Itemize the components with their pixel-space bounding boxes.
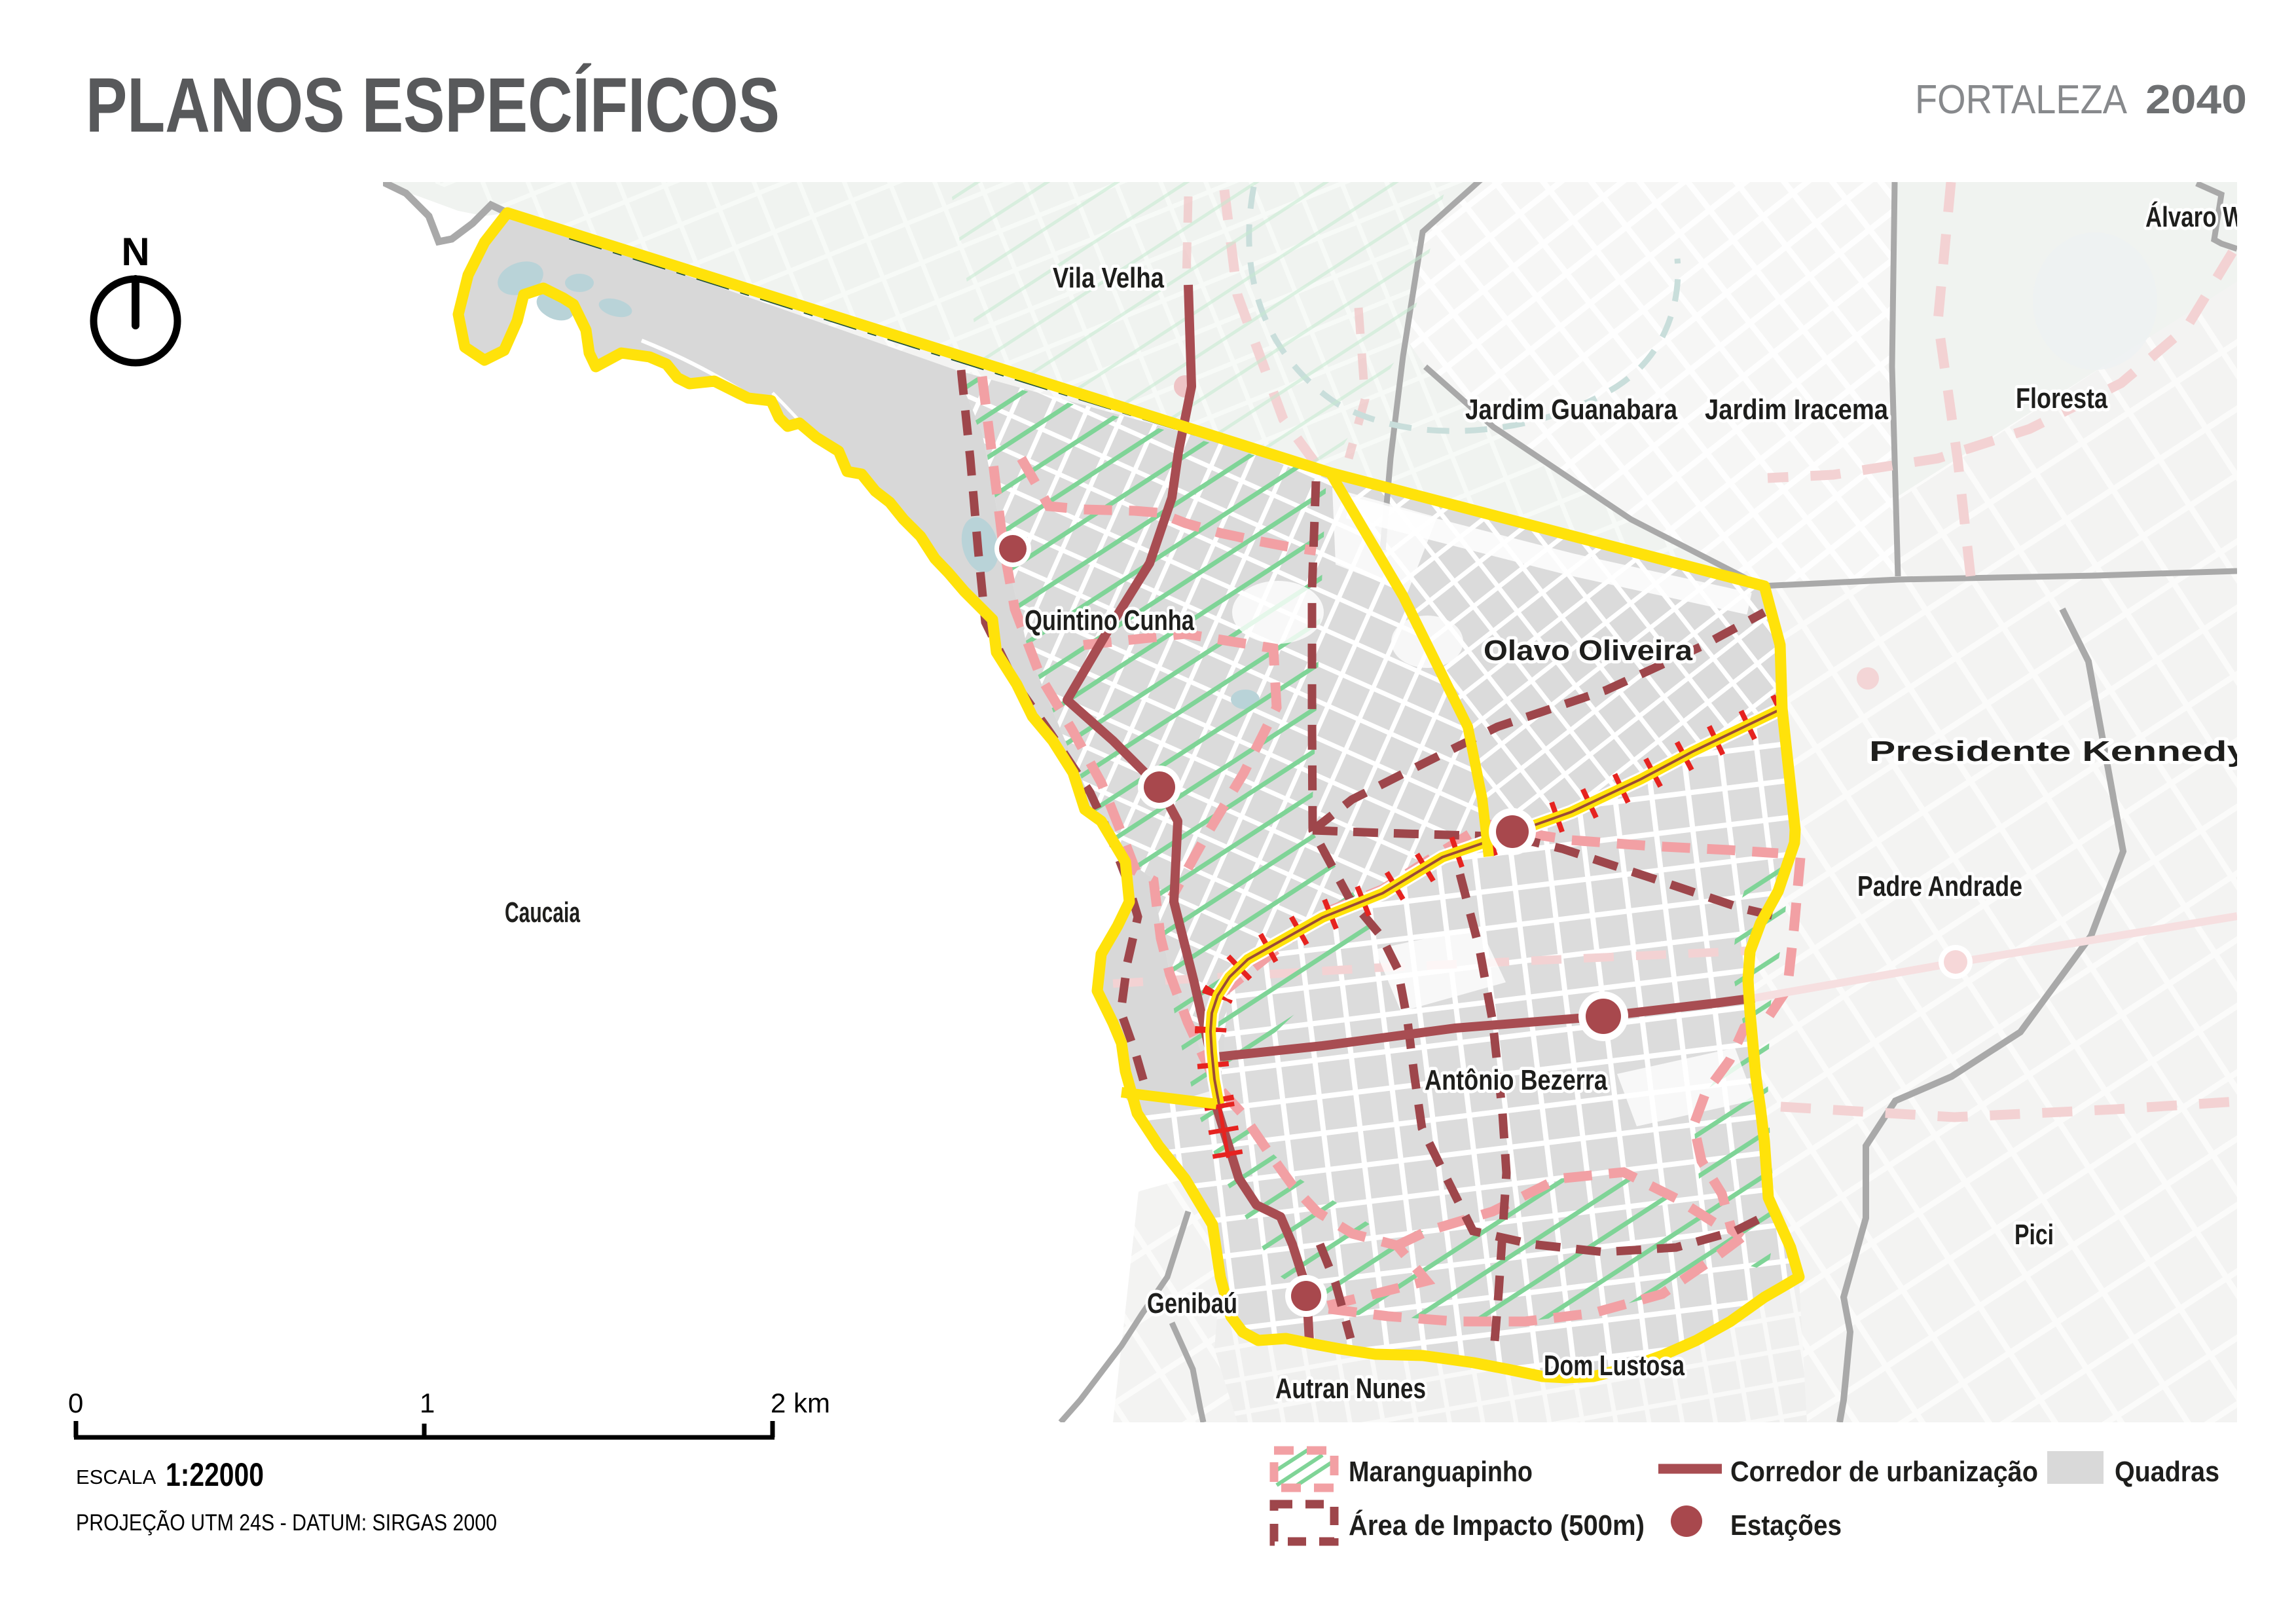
svg-text:2040: 2040 <box>2145 77 2247 122</box>
svg-text:Maranguapinho: Maranguapinho <box>1349 1456 1533 1488</box>
svg-text:PROJEÇÃO UTM 24S - DATUM: SIRG: PROJEÇÃO UTM 24S - DATUM: SIRGAS 2000 <box>76 1510 497 1536</box>
svg-text:Quintino Cunha: Quintino Cunha <box>1025 604 1194 637</box>
svg-text:Presidente Kennedy: Presidente Kennedy <box>1869 735 2250 767</box>
svg-text:N: N <box>121 230 149 274</box>
svg-text:PLANOS ESPECÍFICOS: PLANOS ESPECÍFICOS <box>86 62 780 149</box>
svg-text:Estações: Estações <box>1730 1509 1842 1541</box>
svg-text:Padre Andrade: Padre Andrade <box>1857 870 2022 902</box>
svg-text:Quadras: Quadras <box>2115 1456 2219 1488</box>
svg-text:Floresta: Floresta <box>2016 382 2107 415</box>
svg-text:Dom Lustosa: Dom Lustosa <box>1544 1350 1685 1382</box>
svg-text:Área de Impacto (500m): Área de Impacto (500m) <box>1349 1509 1645 1541</box>
svg-text:FORTALEZA: FORTALEZA <box>1915 77 2128 122</box>
svg-text:Caucaia: Caucaia <box>505 896 580 929</box>
svg-text:Corredor de urbanização: Corredor de urbanização <box>1730 1456 2038 1488</box>
svg-text:Autran Nunes: Autran Nunes <box>1275 1373 1426 1405</box>
svg-text:Vila Velha: Vila Velha <box>1053 262 1164 294</box>
svg-text:Pici: Pici <box>2014 1219 2054 1251</box>
svg-text:0: 0 <box>68 1388 83 1418</box>
svg-text:Antônio Bezerra: Antônio Bezerra <box>1425 1064 1607 1096</box>
svg-text:1:22000: 1:22000 <box>166 1456 264 1493</box>
svg-text:Jardim Guanabara: Jardim Guanabara <box>1465 394 1677 426</box>
svg-text:1: 1 <box>420 1388 435 1418</box>
svg-text:Genibaú: Genibaú <box>1147 1287 1237 1319</box>
svg-text:2 km: 2 km <box>771 1388 830 1418</box>
svg-text:Jardim Iracema: Jardim Iracema <box>1705 394 1888 426</box>
svg-text:Olavo Oliveira: Olavo Oliveira <box>1484 635 1693 667</box>
svg-text:ESCALA: ESCALA <box>76 1466 156 1488</box>
